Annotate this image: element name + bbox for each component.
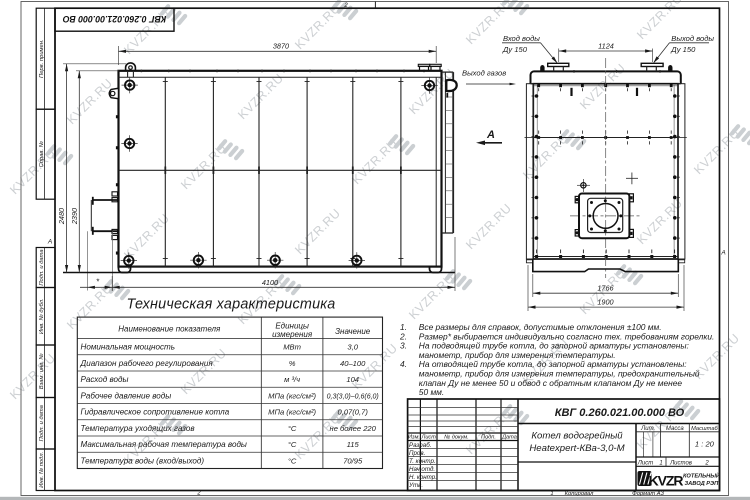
svg-text:KVZR.RU: KVZR.RU [292, 206, 343, 257]
svg-text:2: 2 [343, 3, 348, 9]
svg-text:KVZR.RU: KVZR.RU [577, 61, 628, 112]
svg-text:Разраб.: Разраб. [409, 442, 431, 449]
svg-text:KVZR.RU: KVZR.RU [64, 76, 115, 127]
svg-text:МПа (кгс/см²): МПа (кгс/см²) [268, 391, 316, 400]
svg-text:клапан Ду не менее 50 и обвод: клапан Ду не менее 50 и обвод с обратным… [419, 378, 683, 388]
svg-text:115: 115 [347, 440, 360, 449]
svg-text:1124: 1124 [598, 41, 614, 50]
svg-text:Листов: Листов [669, 461, 692, 467]
svg-text:ЗАВОД РЭП: ЗАВОД РЭП [685, 481, 720, 487]
svg-text:Справ. №: Справ. № [39, 141, 45, 167]
svg-text:Ду 150: Ду 150 [670, 45, 696, 54]
svg-text:2: 2 [704, 461, 709, 467]
svg-text:KVZR.RU: KVZR.RU [235, 71, 286, 122]
svg-text:Перв. примен.: Перв. примен. [39, 39, 45, 78]
svg-text:°С: °С [288, 424, 297, 433]
svg-text:Диапазон рабочего регулировани: Диапазон рабочего регулирования [80, 359, 214, 368]
svg-text:2390: 2390 [70, 208, 79, 225]
svg-text:Подп. и дата: Подп. и дата [39, 249, 45, 286]
svg-text:KVZR.RU: KVZR.RU [178, 346, 229, 397]
svg-text:Котел водогрейный: Котел водогрейный [531, 430, 623, 441]
svg-text:КОТЕЛЬНЫЙ: КОТЕЛЬНЫЙ [683, 472, 721, 480]
svg-text:KVZR.RU: KVZR.RU [691, 126, 742, 177]
svg-text:Heatexpert-КВа-3,0-М: Heatexpert-КВа-3,0-М [529, 443, 624, 454]
svg-text:Температура уходящих газов: Температура уходящих газов [81, 424, 195, 433]
svg-text:70/95: 70/95 [343, 456, 363, 465]
svg-text:Лит.: Лит. [640, 426, 655, 432]
svg-text:МВт: МВт [283, 343, 301, 352]
svg-text:2: 2 [196, 491, 201, 497]
svg-text:Н. контр.: Н. контр. [409, 474, 437, 481]
svg-text:50 мм.: 50 мм. [419, 387, 444, 397]
svg-text:Формат А3: Формат А3 [632, 491, 664, 497]
svg-text:Подп.: Подп. [481, 435, 496, 441]
svg-text:КВГ 0.260.021.00.000 ВО: КВГ 0.260.021.00.000 ВО [63, 14, 167, 24]
svg-text:KVZR.RU: KVZR.RU [406, 271, 457, 322]
svg-text:KVZR.RU: KVZR.RU [7, 146, 58, 197]
svg-text:Инв. № дубл.: Инв. № дубл. [39, 298, 45, 334]
svg-text:Взам. инв. №: Взам. инв. № [39, 353, 45, 389]
svg-text:м ³/ч: м ³/ч [284, 375, 300, 384]
svg-text:2480: 2480 [57, 208, 66, 225]
svg-text:Масса: Масса [666, 426, 684, 432]
svg-text:Наименование показателя: Наименование показателя [118, 325, 221, 334]
svg-text:Лист: Лист [637, 461, 653, 467]
svg-text:104: 104 [346, 375, 359, 384]
svg-text:%: % [289, 359, 296, 368]
svg-text:Копировал: Копировал [565, 491, 595, 497]
svg-text:KVZR.RU: KVZR.RU [349, 136, 400, 187]
svg-text:А: А [486, 129, 495, 141]
svg-text:Инв. № подл.: Инв. № подл. [39, 452, 45, 488]
svg-text:3870: 3870 [273, 42, 289, 51]
svg-text:Дата: Дата [501, 435, 517, 441]
svg-text:А: А [720, 250, 725, 257]
svg-text:Лист: Лист [420, 435, 436, 441]
svg-text:1 : 20: 1 : 20 [695, 440, 715, 449]
svg-text:1: 1 [550, 491, 553, 497]
svg-text:Утв.: Утв. [408, 482, 423, 489]
svg-text:KVZR.RU: KVZR.RU [520, 131, 571, 182]
svg-text:измерения: измерения [272, 330, 313, 339]
svg-text:Выход газов: Выход газов [462, 69, 506, 78]
svg-text:0,07(0,7): 0,07(0,7) [337, 408, 368, 417]
svg-text:А: А [47, 239, 52, 246]
svg-text:°С: °С [288, 440, 297, 449]
svg-text:40–100: 40–100 [340, 359, 366, 368]
svg-text:Т. контр.: Т. контр. [409, 458, 436, 465]
svg-text:0,3(3,0)–0,6(6,0): 0,3(3,0)–0,6(6,0) [327, 393, 379, 400]
svg-text:°С: °С [288, 456, 297, 465]
svg-text:Гидравлическое сопротивление к: Гидравлическое сопротивление котла [81, 408, 230, 417]
svg-text:Пров.: Пров. [409, 450, 425, 457]
svg-text:КВГ 0.260.021.00.000 ВО: КВГ 0.260.021.00.000 ВО [555, 407, 685, 419]
svg-text:*: * [96, 278, 100, 287]
svg-text:1: 1 [659, 461, 662, 467]
svg-text:Максимальная рабочая температу: Максимальная рабочая температура воды [81, 440, 247, 449]
svg-text:4.: 4. [400, 359, 407, 369]
svg-text:Техническая характеристика: Техническая характеристика [127, 297, 336, 313]
svg-text:не более 220: не более 220 [330, 424, 377, 433]
svg-text:KVZR.RU: KVZR.RU [292, 411, 343, 462]
svg-text:Температура воды (вход/выход): Температура воды (вход/выход) [81, 456, 205, 465]
svg-text:KVZR.RU: KVZR.RU [178, 141, 229, 192]
svg-text:Номинальная мощность: Номинальная мощность [81, 343, 176, 352]
svg-text:№ докум.: № докум. [444, 435, 469, 441]
svg-text:Выход воды: Выход воды [671, 34, 714, 43]
svg-text:1766: 1766 [597, 284, 614, 293]
svg-text:Масштаб: Масштаб [691, 426, 718, 432]
svg-text:3,0: 3,0 [347, 343, 358, 352]
svg-text:Ду 150: Ду 150 [502, 45, 528, 54]
svg-text:Вход воды: Вход воды [503, 34, 540, 43]
svg-text:Значение: Значение [335, 327, 371, 336]
svg-text:KVZR: KVZR [649, 472, 684, 488]
svg-text:KVZR.RU: KVZR.RU [64, 281, 115, 332]
svg-text:4100: 4100 [262, 278, 278, 287]
svg-text:Расход воды: Расход воды [81, 375, 129, 384]
svg-text:Нач.отд.: Нач.отд. [409, 466, 435, 473]
svg-text:KVZR.RU: KVZR.RU [7, 351, 58, 402]
svg-text:Изм.: Изм. [408, 435, 420, 441]
svg-text:3.: 3. [400, 341, 407, 351]
svg-text:Подп. и дата: Подп. и дата [39, 404, 45, 441]
svg-text:KVZR.RU: KVZR.RU [463, 201, 514, 252]
svg-text:МПа (кгс/см²): МПа (кгс/см²) [268, 408, 316, 417]
svg-text:KVZR.RU: KVZR.RU [463, 406, 514, 457]
svg-text:1900: 1900 [597, 298, 613, 307]
svg-text:Рабочее давление воды: Рабочее давление воды [81, 391, 172, 400]
